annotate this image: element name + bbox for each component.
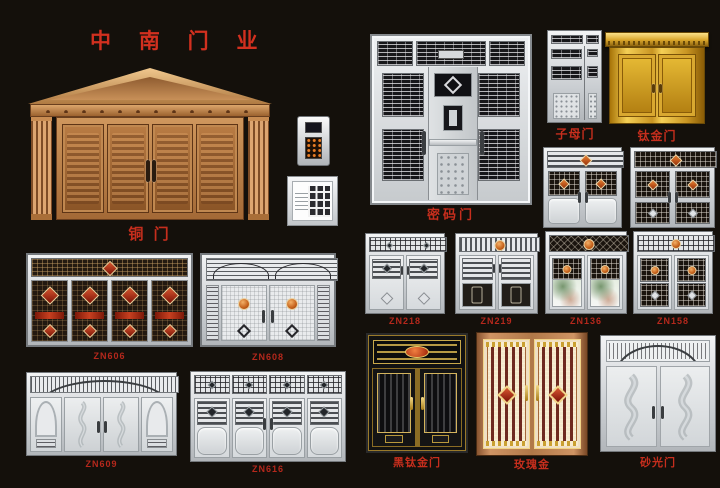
red-diamond-badge: [122, 324, 136, 338]
door-body: [369, 255, 441, 310]
door-body: [56, 117, 244, 220]
door-transom: [373, 340, 461, 364]
studded-panel: [588, 93, 597, 119]
transom-arc: [615, 345, 701, 362]
embossed-panel: [585, 198, 617, 224]
red-band: [75, 312, 104, 319]
scenic-glass-panel: [590, 279, 620, 307]
diamond-ornament: [283, 381, 291, 389]
door-handle: [401, 266, 403, 275]
door-leaf: [658, 54, 696, 117]
zn158-door-image: [633, 231, 713, 314]
door-leaf: [459, 255, 496, 310]
red-medallion: [405, 346, 429, 358]
door-leaf: [660, 366, 711, 447]
mother-son-door-image: [547, 30, 602, 123]
red-diamond-badge: [160, 286, 178, 304]
door-handle: [263, 418, 266, 430]
medallion-diamond: [579, 154, 592, 167]
label-zn616: ZN616: [190, 465, 346, 475]
door-handle: [652, 84, 655, 93]
grill-window: [551, 66, 582, 80]
zn218-door-image: [365, 233, 445, 314]
door-handle: [270, 418, 273, 430]
door-body: [206, 285, 330, 341]
arch-window: [146, 401, 168, 437]
door-handle: [585, 192, 588, 203]
rose-gold-door-image: [476, 332, 588, 456]
door-body: [549, 255, 623, 310]
dark-window: [635, 202, 670, 224]
embossed-panel: [310, 427, 340, 455]
door-leaf: [618, 54, 656, 117]
door-leaf: [111, 280, 148, 342]
diamond-ornament: [208, 381, 216, 389]
carved-panel: [62, 124, 104, 213]
transom-arc: [213, 263, 269, 279]
door-leaf: [232, 398, 268, 458]
door-handle: [675, 192, 678, 203]
copper-door-image: [28, 68, 272, 220]
door-leaf: [372, 368, 416, 447]
door-leaf: [534, 339, 581, 449]
dark-window: [585, 171, 617, 196]
password-door-image: [370, 34, 532, 205]
door-leaf: [547, 171, 581, 224]
ornate-dark-panel: [501, 283, 532, 307]
door-handle: [661, 406, 664, 419]
door-leaf: [498, 255, 535, 310]
grill-window: [478, 129, 520, 181]
door-leaf: [369, 255, 404, 310]
door-leaf: [419, 368, 463, 447]
dark-window: [677, 283, 706, 307]
side-stile: [317, 285, 330, 341]
striped-window: [424, 373, 458, 433]
door-body: [372, 368, 462, 447]
door-handle: [104, 421, 107, 433]
door-leaf: [151, 280, 188, 342]
label-mother-son-door: 子母门: [545, 128, 605, 141]
door-handle: [271, 310, 274, 323]
medallion-circle: [671, 239, 681, 249]
zn606-door-image: [26, 253, 193, 347]
red-diamond-badge: [42, 324, 56, 338]
intercom-keypad: [305, 137, 322, 159]
door-leaf: [587, 255, 623, 310]
door-leaf: [71, 280, 108, 342]
dark-window: [548, 171, 580, 196]
red-band: [35, 312, 64, 319]
keypad-text-lines: [295, 190, 308, 210]
door-handle: [480, 131, 484, 155]
medallion-diamond: [595, 178, 606, 189]
lattice-strip: [147, 439, 167, 448]
door-rail: [429, 139, 477, 146]
transom-plate: [438, 50, 464, 59]
door-body: [606, 366, 710, 447]
label-black-titanium-door: 黑钛金门: [366, 457, 468, 469]
door-transom: [549, 235, 629, 252]
video-intercom-image: [297, 116, 330, 166]
label-zn136: ZN136: [545, 317, 627, 327]
ornate-dark-panel: [462, 283, 493, 307]
zn609-door-image: [26, 372, 177, 456]
black-titanium-door-image: [366, 333, 468, 453]
striped-window: [377, 373, 411, 433]
door-transom: [547, 151, 624, 168]
door-handle: [410, 397, 413, 410]
dark-window: [640, 258, 669, 282]
carved-leaf: [64, 397, 101, 452]
arch-leaf: [30, 397, 62, 452]
door-leaf: [406, 255, 441, 310]
carved-panel: [196, 124, 238, 213]
door-leaf: [606, 366, 657, 447]
door-pediment: [28, 68, 272, 104]
zn136-door-image: [545, 231, 627, 314]
side-stile: [206, 285, 219, 341]
red-band: [115, 312, 144, 319]
diamond-ornament: [320, 381, 328, 389]
dark-window: [675, 171, 710, 198]
label-password-door: 密码门: [370, 208, 532, 222]
door-body: [459, 255, 534, 310]
door-transom: [369, 237, 447, 252]
diamond-ornament: [245, 381, 253, 389]
diamond-window: [434, 73, 472, 97]
door-leaf: [584, 171, 618, 224]
door-leaf: [634, 171, 671, 224]
door-transom: [377, 41, 525, 66]
dark-window: [677, 258, 706, 282]
label-titanium-gold-door: 钛金门: [605, 130, 709, 143]
door-leaf: [549, 255, 585, 310]
door-handle: [97, 421, 100, 433]
embossed-diamond: [417, 292, 430, 305]
intercom-screen: [305, 122, 322, 133]
medallion-circle: [563, 265, 572, 274]
grill-window: [382, 73, 424, 117]
red-diamond-badge: [102, 261, 118, 277]
door-transom: [637, 235, 715, 252]
transom-grid: [377, 41, 413, 66]
carved-panel: [152, 124, 194, 213]
door-frieze: [30, 104, 270, 117]
dragon-emboss-graphic: [661, 367, 710, 446]
label-copper-door: 铜 门: [28, 227, 272, 244]
red-diamond-badge: [548, 385, 568, 405]
door-handle: [652, 406, 655, 419]
catalog-poster: { "poster": { "title": "中 南 门 业" }, "pro…: [0, 0, 720, 488]
medallion-diamond: [669, 154, 682, 167]
arch-leaf: [141, 397, 173, 452]
door-leaf: [269, 285, 315, 341]
transom-grid: [586, 35, 599, 44]
pale-diamond: [688, 209, 698, 219]
door-handle: [493, 264, 495, 273]
door-leaf: [637, 255, 672, 310]
door-leaf: [31, 280, 68, 342]
embossed-panel: [272, 427, 302, 455]
door-handle: [668, 192, 671, 203]
scenic-glass-panel: [552, 279, 582, 307]
door-handle: [407, 266, 409, 275]
door-handle: [421, 397, 424, 410]
door-center-stile: [428, 67, 478, 200]
diamond-ornament: [386, 242, 393, 249]
dragon-emboss-graphic: [104, 398, 139, 451]
transom-grid: [551, 35, 583, 44]
pale-diamond: [648, 209, 658, 219]
studded-panel: [437, 153, 469, 195]
medallion-circle: [286, 298, 298, 310]
label-zn218: ZN218: [365, 317, 445, 327]
door-handle: [536, 385, 539, 401]
lattice-strip: [36, 439, 56, 448]
medallion-circle: [494, 240, 505, 251]
door-column-right: [248, 117, 269, 220]
door-leaf: [483, 339, 530, 449]
red-diamond-badge: [120, 286, 138, 304]
door-body: [31, 280, 188, 342]
label-zn606: ZN606: [26, 352, 193, 362]
medallion-door-image: [630, 147, 715, 228]
door-leaf: [674, 171, 711, 224]
door-transom: [31, 258, 188, 277]
door-handle: [499, 264, 501, 273]
zn219-door-image: [455, 233, 538, 314]
grill-window: [587, 66, 598, 78]
transom-grid: [269, 375, 305, 394]
pale-diamond: [687, 291, 697, 301]
dark-window: [552, 258, 582, 280]
mini-panel: [385, 435, 403, 443]
medallion-diamond: [558, 178, 569, 189]
transom-arc: [275, 263, 331, 279]
door-handle: [525, 385, 528, 401]
access-keypad-image: [287, 176, 338, 226]
door-handle: [262, 310, 265, 323]
zn616-door-image: [190, 371, 346, 462]
medallion-circle: [584, 239, 595, 250]
label-rose-gold-door: 玫瑰金: [476, 459, 588, 471]
transom-grid: [489, 41, 525, 66]
grill-window: [587, 49, 598, 57]
studded-panel: [553, 93, 580, 119]
dark-window: [675, 202, 710, 224]
red-band: [155, 312, 184, 319]
door-body: [194, 398, 342, 458]
door-body: [634, 171, 711, 224]
red-diamond-badge: [497, 385, 517, 405]
dragon-emboss-graphic: [65, 398, 100, 451]
red-diamond-badge: [82, 324, 96, 338]
keypad-buttons: [308, 186, 330, 217]
embossed-diamond: [380, 292, 393, 305]
diamond-ornament: [285, 324, 299, 338]
door-transom: [30, 376, 179, 393]
dark-window: [635, 171, 670, 198]
slat-window: [501, 258, 532, 280]
medallion-circle: [687, 266, 696, 275]
diamond-ornament: [237, 324, 251, 338]
door-handle: [152, 160, 156, 182]
embossed-panel: [197, 427, 227, 455]
dark-window: [590, 258, 620, 280]
door-handle: [659, 84, 662, 93]
label-zn158: ZN158: [633, 317, 713, 327]
door-handle: [578, 192, 581, 203]
door-handle: [146, 160, 150, 182]
carved-leaf: [103, 397, 140, 452]
door-transom: [459, 237, 540, 252]
titanium-gold-door-image: [605, 32, 709, 124]
diamond-ornament: [423, 242, 430, 249]
door-body: [30, 397, 173, 452]
medallion-diamond: [687, 179, 698, 190]
door-transom: [206, 258, 338, 281]
medallion-circle: [650, 266, 659, 275]
dark-window: [640, 283, 669, 307]
medallion-diamond: [647, 179, 658, 190]
door-leaf: [307, 398, 343, 458]
door-body: [637, 255, 709, 310]
transom-grid: [416, 41, 486, 66]
transom-grid: [194, 375, 230, 394]
grill-window: [382, 129, 424, 181]
door-body: [609, 47, 705, 124]
arch-window: [35, 401, 57, 437]
red-diamond-badge: [40, 286, 58, 304]
door-column-left: [31, 117, 52, 220]
label-zn219: ZN219: [455, 317, 538, 327]
red-diamond-badge: [162, 324, 176, 338]
label-sand-polished-door: 砂光门: [600, 457, 716, 469]
transom-arc: [39, 380, 170, 393]
transom-grid: [307, 375, 343, 394]
door-transom: [634, 151, 717, 168]
medallion-circle: [238, 298, 250, 310]
sand-polished-door-image: [600, 335, 716, 452]
label-zn609: ZN609: [26, 460, 177, 470]
door-transom: [194, 375, 342, 394]
grill-window: [478, 73, 520, 117]
medallion-circle: [601, 265, 610, 274]
medallion-door-image: [543, 147, 622, 228]
label-zn608: ZN608: [200, 353, 336, 363]
pale-diamond: [650, 291, 660, 301]
door-code-keypad: [443, 105, 463, 131]
carved-panel: [107, 124, 149, 213]
door-leaf: [269, 398, 305, 458]
embossed-panel: [235, 427, 265, 455]
door-body: [547, 171, 618, 224]
zn608-door-image: [200, 253, 336, 347]
dragon-emboss-graphic: [607, 367, 656, 446]
grill-window: [551, 49, 582, 59]
embossed-panel: [548, 198, 580, 224]
door-handle: [422, 131, 426, 155]
door-cornice: [605, 32, 709, 47]
slat-window: [462, 258, 493, 280]
door-leaf: [674, 255, 709, 310]
brand-title: 中 南 门 业: [90, 30, 320, 53]
door-transom: [606, 340, 710, 362]
transom-grid: [232, 375, 268, 394]
red-diamond-badge: [80, 286, 98, 304]
leaf-seam: [584, 46, 585, 120]
mini-panel: [432, 435, 450, 443]
door-leaf: [221, 285, 267, 341]
door-leaf: [194, 398, 230, 458]
